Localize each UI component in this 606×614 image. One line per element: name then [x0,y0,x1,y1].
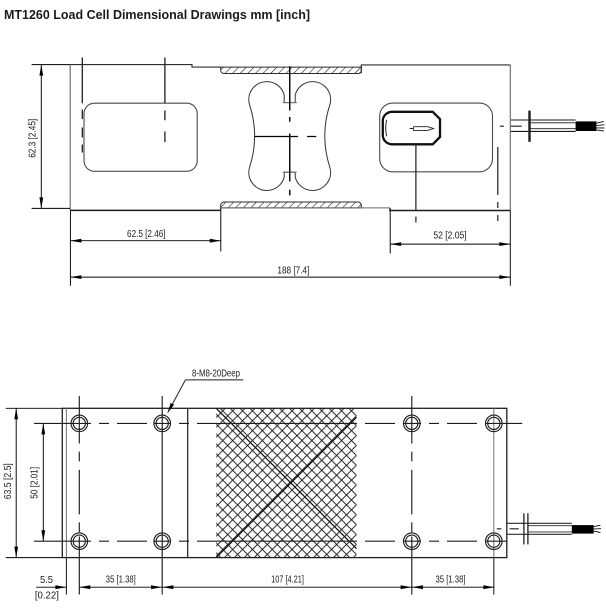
svg-text:MT1260 Load Cell Dimensional D: MT1260 Load Cell Dimensional Drawings mm… [4,7,310,22]
svg-text:188 [7.4]: 188 [7.4] [277,266,309,277]
svg-text:50 [2.01]: 50 [2.01] [29,467,40,499]
svg-text:8-M8-20Deep: 8-M8-20Deep [192,368,240,379]
svg-text:52 [2.05]: 52 [2.05] [433,230,466,241]
svg-text:62.5 [2.46]: 62.5 [2.46] [127,229,166,240]
svg-text:63.5 [2.5]: 63.5 [2.5] [3,463,14,499]
svg-text:35 [1.38]: 35 [1.38] [106,575,136,586]
svg-text:5.5: 5.5 [40,575,53,586]
svg-text:107 [4.21]: 107 [4.21] [271,575,304,586]
svg-text:62.3 [2.45]: 62.3 [2.45] [28,119,39,158]
svg-text:[0.22]: [0.22] [35,590,59,601]
svg-text:35 [1.38]: 35 [1.38] [436,575,466,586]
